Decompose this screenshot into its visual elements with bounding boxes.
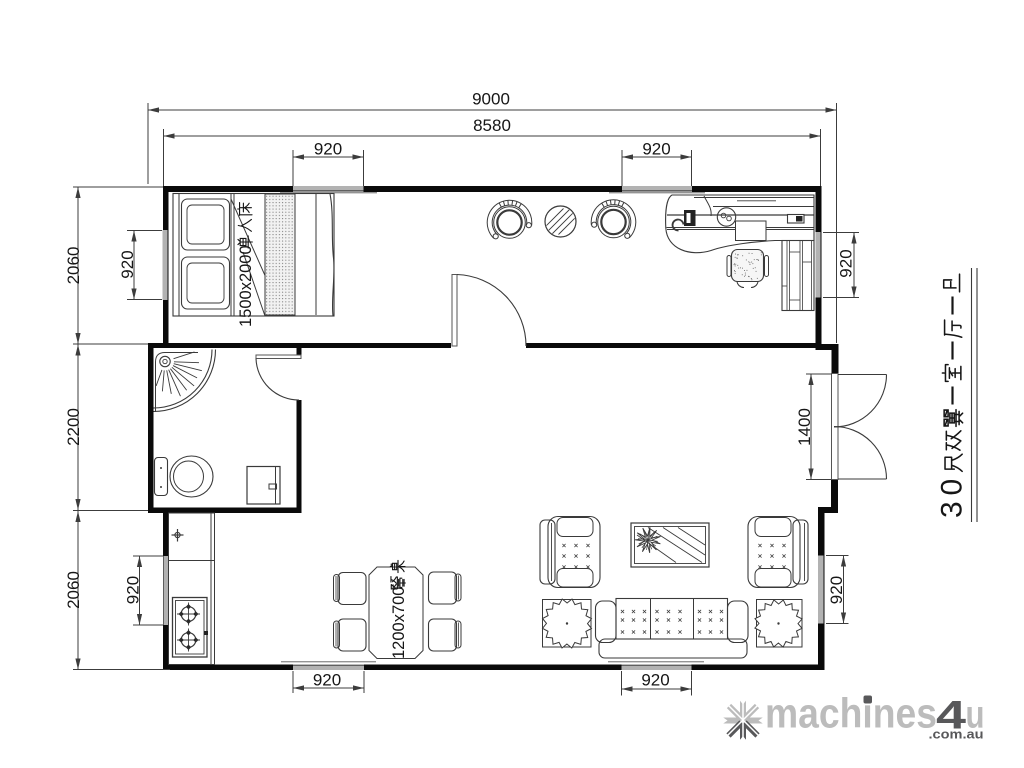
svg-text:2200: 2200 bbox=[64, 408, 83, 446]
svg-text:.com.au: .com.au bbox=[929, 728, 984, 742]
svg-text:920: 920 bbox=[118, 250, 137, 278]
svg-text:8580: 8580 bbox=[473, 116, 511, 135]
svg-text:9000: 9000 bbox=[472, 90, 510, 109]
svg-text:920: 920 bbox=[642, 140, 670, 159]
svg-text:920: 920 bbox=[314, 140, 342, 159]
svg-text:3: 3 bbox=[936, 501, 969, 518]
svg-text:1200x700: 1200x700 bbox=[390, 587, 408, 660]
svg-text:920: 920 bbox=[313, 671, 341, 690]
svg-text:machines: machines bbox=[765, 690, 937, 737]
svg-text:920: 920 bbox=[124, 576, 143, 604]
svg-text:1400: 1400 bbox=[795, 408, 814, 446]
svg-text:920: 920 bbox=[827, 576, 846, 604]
svg-text:0: 0 bbox=[936, 479, 969, 496]
svg-text:2060: 2060 bbox=[64, 571, 83, 609]
svg-text:920: 920 bbox=[641, 671, 669, 690]
svg-text:1500x2000: 1500x2000 bbox=[237, 245, 255, 327]
svg-text:920: 920 bbox=[837, 249, 856, 277]
svg-text:2060: 2060 bbox=[64, 247, 83, 285]
